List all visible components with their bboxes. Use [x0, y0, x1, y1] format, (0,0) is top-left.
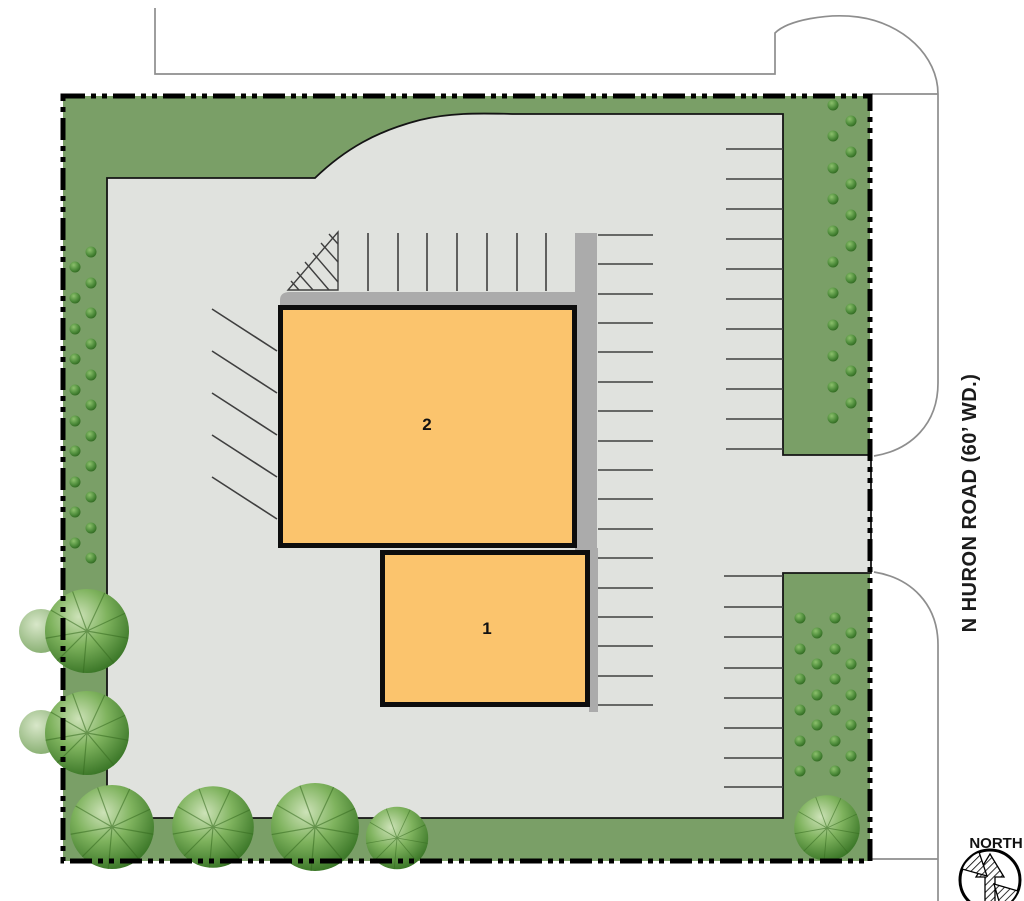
north-arrow-icon: [960, 850, 1020, 901]
tree: [45, 589, 129, 673]
building-2-label: 2: [422, 415, 431, 434]
building-1-label: 1: [482, 619, 491, 638]
site-plan-drawing: 2 1: [0, 0, 1024, 901]
driveway-lower-curb-line: [874, 572, 938, 901]
north-indicator: NORTH: [960, 835, 1023, 901]
tree: [794, 795, 860, 861]
tree: [45, 691, 129, 775]
tree: [70, 785, 154, 869]
road-label: N HURON ROAD (60’ WD.): [959, 374, 981, 633]
tree: [172, 786, 254, 868]
site-plan-canvas: 2 1: [0, 0, 1024, 901]
tree: [271, 783, 359, 871]
